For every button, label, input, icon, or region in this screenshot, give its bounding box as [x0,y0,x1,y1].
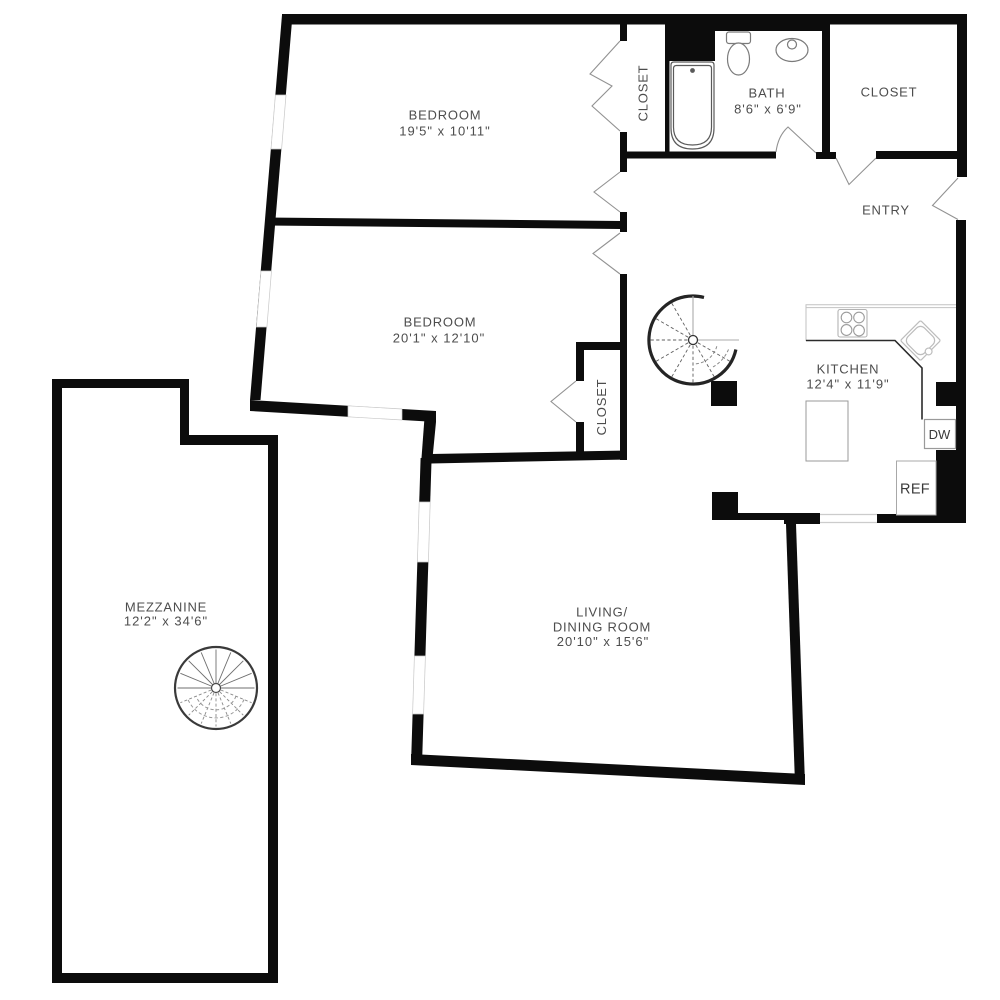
svg-text:DW: DW [929,427,951,442]
svg-text:KITCHEN: KITCHEN [817,362,880,377]
svg-text:8'6" x 6'9": 8'6" x 6'9" [734,102,802,117]
svg-text:CLOSET: CLOSET [636,65,651,122]
svg-text:BATH: BATH [749,86,786,101]
svg-text:CLOSET: CLOSET [861,85,918,100]
svg-text:LIVING/: LIVING/ [576,605,628,620]
svg-text:12'4" x 11'9": 12'4" x 11'9" [806,377,889,392]
svg-text:12'2" x 34'6": 12'2" x 34'6" [124,614,208,629]
svg-text:20'1" x 12'10": 20'1" x 12'10" [393,331,486,346]
svg-text:20'10" x 15'6": 20'10" x 15'6" [557,634,650,649]
svg-text:CLOSET: CLOSET [594,379,609,436]
svg-text:BEDROOM: BEDROOM [404,315,477,330]
svg-text:REF: REF [900,482,930,498]
svg-text:DINING ROOM: DINING ROOM [553,620,651,635]
svg-text:BEDROOM: BEDROOM [409,108,482,123]
svg-text:MEZZANINE: MEZZANINE [125,600,207,615]
svg-text:ENTRY: ENTRY [862,203,910,218]
svg-text:19'5" x 10'11": 19'5" x 10'11" [399,123,491,138]
